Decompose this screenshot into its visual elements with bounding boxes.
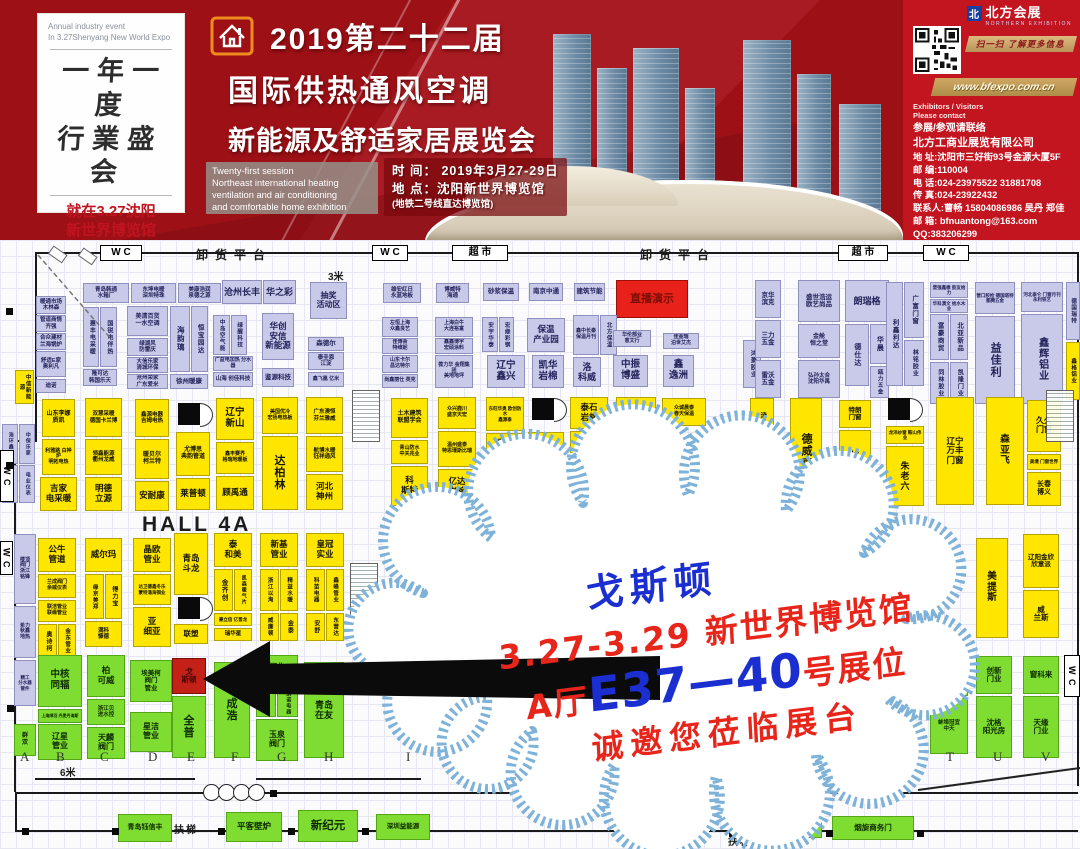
booth: 沧州荣家 广东爱米 (127, 374, 168, 389)
english-subtitle-line: ventilation and air conditioning (212, 189, 372, 201)
door-marker-icon (362, 828, 369, 835)
booth: 明德 立源 (85, 477, 122, 511)
website-link[interactable]: www.bfexpo.com.cn (931, 78, 1077, 96)
door-marker-icon (22, 828, 29, 835)
booth: 满科 慷德 (85, 621, 122, 647)
booth: 宏缘彩钢 (499, 317, 514, 352)
contact-line: 参展/参观请联络 (913, 122, 1075, 136)
booth: 新纪元 (298, 810, 358, 842)
radiator-icon (1046, 390, 1074, 442)
wall-corridor-outer (15, 792, 1078, 794)
english-subtitle-box: Twenty-first sessionNortheast internatio… (206, 162, 378, 214)
door-marker-icon (826, 830, 833, 837)
annual-event-text: Annual industry event In 3.27Shenyang Ne… (48, 22, 174, 44)
booth: 众诚晨泰 春天保温 (662, 398, 706, 426)
door-marker-icon (729, 830, 736, 837)
booth: 得力宝 (105, 574, 122, 619)
booth: 国锐电伴热 (100, 307, 117, 367)
map-label: 扶梯 (174, 821, 198, 836)
event-place: 地 点：沈阳新世界博览馆 (392, 180, 559, 198)
calligraphy-slogan: 一年一度 行業盛会 (43, 55, 178, 190)
booth: 青岛 在友 (304, 662, 344, 758)
booth: 绿湖风 防雷庆 (127, 338, 168, 356)
booth: 河北泰仑 门窗月刊 永利铁艺 (1021, 282, 1063, 312)
booth: 鑫 逸洲 (663, 355, 694, 387)
booth: 佳金瑞 泊世艾杰 (663, 333, 699, 349)
booth: 精益水暖 (280, 569, 298, 611)
booth: 尚鑫丽仕 英克 (382, 374, 418, 388)
contact-line: 联系人:曹畅 15804086986 吴丹 郑佳 (913, 202, 1075, 215)
booth: 中信新能源 (15, 370, 34, 404)
booth: 华伦部业 意文行 (613, 330, 651, 347)
booth: 徐州暖康 (170, 374, 208, 389)
column-letter: H (324, 749, 333, 765)
column-letter: C (100, 749, 109, 765)
booth: 兰成阀门 余威仪表 (38, 574, 76, 598)
booth-entrance-icon (888, 398, 910, 420)
booth: 东坤电暖 深圳特珠 (131, 283, 176, 303)
booth: 美清百货 一水空调 (127, 306, 168, 336)
wall-corridor-inner-a (35, 778, 195, 780)
booth: 金舱 恒之堂 (798, 324, 840, 358)
booth: 长春 博义 (1027, 472, 1061, 506)
booth: 迪诺 (36, 379, 66, 393)
column-letter: A (20, 749, 29, 765)
booth: 山东李娜 质凯 (42, 399, 75, 437)
booth: 科 斯特 (391, 466, 428, 506)
booth: 星洁 管业 (130, 712, 172, 752)
event-place-note: (地铁二号线直达博览馆) (392, 198, 559, 212)
column-letter: V (1041, 749, 1050, 765)
booth: 盛世浩运 欧艺尚品 (798, 280, 840, 322)
booth: W C (0, 450, 14, 502)
booth: W C (1064, 655, 1080, 697)
english-subtitle-line: Northeast international heating (212, 177, 372, 189)
booth: 鑫源电器 吉姆电热 (135, 399, 169, 437)
booth: 超 市 (838, 245, 888, 261)
booth: 尤博思 典韵管道 (176, 432, 210, 476)
column-letter: U (993, 749, 1002, 765)
booth: 利鑫利达 (886, 282, 903, 386)
booth: 中核 同辐 (38, 655, 82, 707)
booth: 精工 分水器 管件 (14, 660, 36, 706)
booth: 多 米乐 (528, 466, 564, 502)
radiator-icon (352, 390, 380, 442)
door-marker-icon (6, 462, 13, 469)
booth: 青岛韩通 水箱厂 (83, 283, 129, 303)
booth-entrance-icon (178, 597, 200, 619)
booth: 联塑 (174, 624, 208, 644)
booth: 鉴源科技 (262, 368, 294, 387)
english-subtitle-line: Twenty-first session (212, 165, 372, 177)
qr-code (913, 26, 961, 74)
logo-text: 北方会展 (986, 6, 1072, 19)
booth: 山海 创佳科技 (213, 372, 253, 387)
venue-announcement: 就在3.27沈阳 新世界博览馆 (48, 202, 174, 240)
booth: 森德尔 (308, 337, 344, 351)
booth: 堡强鑫橡 胶友给力 (930, 282, 968, 298)
booth: 辽宁 鑫兴 (487, 355, 525, 388)
column-letter: T (946, 749, 954, 765)
booth: 广东澳恒 芬兰雅威 (306, 397, 343, 434)
booth: 达卫德鑫冬乐 蒙特涌海铜业 (133, 574, 171, 605)
booth: 皇冠 实业 (306, 533, 344, 567)
door-marker-icon (6, 308, 13, 315)
booth: 浙江贝 进水控 (87, 699, 125, 725)
booth: 众兴鹿川 盛京天宏 (438, 397, 476, 429)
booth: 倾旋商务门 (770, 818, 822, 838)
booth-entrance-icon (532, 398, 554, 420)
qr-scan-ribbon: 扫一扫 了解更多信息 (965, 36, 1077, 52)
booth: 北亚新品 (950, 314, 968, 360)
booth: 朱 老 六 (886, 446, 924, 506)
highlighted-booth: 戈 斯顿 (172, 658, 206, 694)
booth-entrance-icon (178, 403, 200, 425)
title-line-3: 新能源及舒适家居展览会 (228, 119, 536, 158)
booth: 深圳益能源 (376, 814, 430, 840)
booth: 超 市 (452, 245, 508, 261)
booth: 辽阳金欣 欣意派 (1023, 534, 1059, 588)
booth: 河北 神州 (306, 474, 343, 510)
contact-line: 北方工商业展览有限公司 (913, 136, 1075, 151)
booth: 双慧采暖 德国卡兰博 (85, 398, 122, 437)
booth: 三力 五金 (755, 320, 781, 358)
booth: 保温 产业园 (527, 318, 565, 352)
contact-line: 邮 箱: bfnuantong@163.com (913, 215, 1075, 228)
booth: 葆力华 金翔集团 美地地坪 (435, 355, 473, 388)
contact-line: QQ:383206299 (913, 228, 1075, 240)
booth: 舒适E家 奥利凡 (36, 351, 66, 377)
booth: 平客壁炉 (226, 812, 282, 842)
booth: 鑫中长秦 保温月刊 (573, 315, 599, 355)
booth: 砂浆保温 (483, 283, 519, 301)
booth: 中振 博盛 (613, 355, 648, 387)
booth: 窗科来 (1023, 656, 1059, 694)
booth: 莱普顿 (176, 478, 210, 510)
contact-lines: Exhibitors / VisitorsPlease contact参展/参观… (913, 102, 1075, 240)
booth: 宁泰保温 领科实业 (570, 431, 608, 453)
door-marker-icon (288, 828, 295, 835)
booth: 沧州长丰 (222, 280, 262, 304)
map-label: 2M (670, 833, 684, 844)
wall-corridor-inner-b (256, 778, 421, 780)
door-marker-icon (112, 828, 119, 835)
booth: 威廉顿 (260, 613, 279, 641)
booth: 公牛 管道 (38, 538, 76, 572)
banner-title: 2019第二十二届 国际供热通风空调 新能源及舒适家居展览会 (228, 14, 536, 158)
booth: 雷沃 五金 (755, 360, 781, 398)
map-label: 6米 (60, 764, 76, 779)
booth: 纳诺电器 (277, 689, 298, 717)
booth: 朗瑞格 (845, 280, 889, 322)
door-marker-icon (7, 705, 14, 712)
time-place-block: 时 间： 2019年3月27-29日 地 点：沈阳新世界博览馆 (地铁二号线直达… (384, 158, 567, 216)
booth: 电业仪表 (19, 465, 35, 503)
logo-icon: 北 (967, 6, 982, 21)
title-line-2: 国际供热通风空调 (228, 66, 536, 110)
booth: 管道商情 齐强 (36, 315, 66, 332)
column-letter: G (277, 749, 286, 765)
contact-line: Exhibitors / Visitors (913, 102, 1075, 111)
booth: 达 柏 林 (262, 436, 298, 510)
booth: 普莱 斯德 (616, 397, 656, 473)
wall-left-outer (15, 792, 17, 832)
booth: 楼顶 阀门 浙江 铭锋 (14, 534, 36, 604)
booth: 上海白牛 大连裕富 (435, 317, 473, 337)
booth: 安宇华泰 (482, 317, 498, 352)
event-time: 时 间： 2019年3月27-29日 (392, 162, 559, 180)
banner: Annual industry event In 3.27Shenyang Ne… (0, 0, 1080, 240)
booth: 泰 和美 (214, 533, 252, 567)
booth: 亚 细亚 (133, 607, 171, 647)
map-label: 3米 (328, 268, 344, 283)
booth: 惠丰电采暖 (83, 307, 99, 367)
booth: 广益电加热 分水器 (213, 356, 253, 371)
booth: 新基 管业 (260, 533, 298, 567)
booth: 亿达 岩棉 (438, 469, 476, 505)
column-letter: F (231, 749, 238, 765)
booth: 合众建材 兰海锅炉 (36, 333, 66, 350)
booth: 利雅路 白桦炉 明拓电热 (42, 439, 75, 475)
booth: 温州盛泰 特思瑾斯比瑞 (438, 431, 476, 467)
booth: 津联型材 (750, 398, 774, 456)
english-subtitle-line: and comfortable home exhibition (212, 201, 372, 213)
booth: 德威克 (790, 398, 822, 504)
booth: 柏 可威 (87, 655, 125, 697)
booth: 金佰汇 (616, 475, 656, 503)
booth: 安舒 (306, 613, 325, 641)
booth: 绿醒科技 (231, 315, 247, 355)
booth: 科苗电器 (306, 569, 325, 611)
column-letter: I (406, 749, 410, 765)
booth: 瑞华星 (214, 628, 252, 641)
booth: 南京中通 (529, 283, 563, 301)
booth: 建筑节能 (574, 283, 605, 301)
booth: 鑫鑫博宇 宏硕涂料 (435, 338, 473, 354)
booth: W C (0, 541, 13, 575)
booth: 华科漠文 给水木业 (930, 299, 968, 313)
booth: 大信乐家 清城环保 (127, 357, 168, 373)
booth: 隆可达 韩国乐天 (83, 369, 117, 386)
booth: 鑫丰赛界 格瑞地暖板 (216, 442, 254, 474)
booth: 斯利 通江保温 (570, 455, 608, 473)
booth: 泰圣恩 江淀 (308, 352, 344, 370)
booth: 中保乐家 (19, 424, 35, 464)
booth: 东旺华奥 欧创防水 鑫源泰 (486, 397, 524, 431)
booth: 德仕达 (845, 324, 869, 386)
booth: 美康浩润 泉德之源 (178, 283, 221, 303)
contact-line: 电 话:024-23975522 31881708 (913, 177, 1075, 190)
booth: 华创 安信 新能源 (262, 313, 294, 360)
booth: 洛 科威 (573, 357, 601, 387)
booth: 埃美柯 阀门 管业 (130, 660, 172, 702)
booth: 吉家 电采暖 (40, 477, 77, 511)
booth: 豪立信 亿晋龙 (214, 613, 252, 626)
booth: 富豪商贸 (930, 314, 949, 360)
booth: 海韵璃 (170, 306, 190, 372)
booth: 金东管业 (58, 624, 76, 658)
booth: 广富门窗 (904, 282, 924, 338)
booth: 左恒上海 众鑫良艺 (382, 317, 418, 337)
booth: 格 来 迪 (839, 430, 871, 506)
booth: 联洁管业 联缘管业 (38, 600, 76, 622)
booth: 河北 亿能 (256, 655, 298, 687)
booth: 森 亚 飞 (986, 397, 1024, 505)
booth: 烟旋商务门 (832, 816, 914, 840)
booth: 弘孙太合 沈阳华禹 (798, 360, 840, 398)
column-letter: E (187, 749, 195, 765)
booth: 营口胶枪 德国塔特 都腾五金 (975, 282, 1015, 314)
booth: 希力 秋鑫 地热 (14, 606, 36, 658)
left-event-card: Annual industry event In 3.27Shenyang Ne… (38, 14, 184, 212)
wall-top (35, 252, 1078, 254)
booth: 青岛钰信丰 (118, 814, 172, 842)
booth: 恒宝园达 (191, 306, 208, 372)
door-marker-icon (218, 828, 225, 835)
booth: 龙洋纱窗 鞍山伟业 (886, 426, 924, 444)
booth: 金齐创 (214, 569, 233, 611)
booth: 永晨 伟业 (570, 475, 608, 505)
contact-line: 地 址:沈阳市三好街93号金源大厦5F (913, 151, 1075, 164)
booth: 星期八 宗森 (486, 485, 524, 511)
booth: 辽宁 新山 (216, 398, 254, 440)
booth: 凯森暖气片 (234, 569, 252, 611)
booth: 直播演示 (616, 280, 688, 318)
title-line-1: 2019第二十二届 (270, 14, 536, 58)
booth: 安耐康 (135, 481, 169, 511)
booth: 上海绿羽 丹麦丹海斯 (38, 709, 82, 723)
booth: 暖通市场 木林森 (36, 296, 66, 314)
booth: 金泰 (280, 613, 298, 641)
booth: 美境 门窗世界 (1027, 454, 1061, 470)
booth: 土木建筑 联盟学会 (391, 398, 428, 438)
booth: 奥诗柯 (38, 624, 57, 658)
revolving-door-icon (248, 784, 265, 801)
booth: 益佳利 (975, 316, 1015, 404)
booth: W C (372, 245, 408, 261)
booth: 德美斯 飞浴防水 (486, 433, 524, 459)
booth: 巨 (662, 455, 702, 483)
contact-line: 邮 编:110004 (913, 164, 1075, 177)
booth: 阀门 (256, 689, 276, 717)
booth: 威 兰斯 (1023, 590, 1059, 638)
column-letter: S (901, 749, 908, 765)
booth: 成 浩 (214, 662, 250, 758)
booth: 抽奖 活动区 (310, 282, 347, 319)
booth: 博威特 海通 (436, 283, 469, 303)
booth: 鑫飞凰 亿米 (308, 372, 344, 387)
booth: 暖贝尔 柯兰特 (135, 439, 169, 479)
contact-panel: 北 北方会展 NORTHERN EXHIBITION 扫一扫 了解更多信息 ww… (903, 0, 1080, 240)
booth: 林铭胶业 (904, 340, 924, 386)
column-letter: B (56, 749, 65, 765)
hall-label: HALL 4A (142, 513, 251, 537)
booth: 京华 滨克 (755, 280, 781, 318)
booth: 东营达 (326, 613, 344, 641)
booth: 鑫峰管业 (326, 569, 344, 611)
booth: 德国瑞特 (1066, 282, 1080, 340)
booth: 佳博会 特维妮 (382, 338, 418, 354)
poster: Annual industry event In 3.27Shenyang Ne… (0, 0, 1080, 849)
door-marker-icon (270, 790, 277, 797)
booth: 凯华 岩棉 (532, 355, 564, 388)
booth: 中岛空气能 (213, 315, 230, 355)
booth: 青岛 斗龙 (174, 533, 208, 595)
booth: 缘京美郑 (85, 574, 104, 619)
booth: 华之彩 (263, 280, 296, 304)
contact-line: Please contact (913, 111, 1075, 120)
booth: 青山防水 中关兆业 (391, 440, 428, 464)
column-letter: D (148, 749, 157, 765)
booth: W C (100, 245, 142, 261)
booth: 晶欧 管业 (133, 538, 171, 572)
booth: 雄安红日 永蓝地板 (383, 283, 421, 303)
booth: 辽宁 万丰 门窗 (936, 397, 974, 505)
booth: 永兴瑞治 长春 (486, 461, 524, 483)
booth: W C (923, 245, 969, 261)
booth: 泰石 岩棉 (570, 397, 608, 429)
booth: 顾禹通 (216, 476, 254, 510)
contact-line: 传 真:024-23922432 (913, 189, 1075, 202)
booth: 美国优冷 宏扬电热板 (262, 397, 298, 434)
booth: 航博水暖 钰祥通风 (306, 436, 343, 472)
booth: 领鑫能源 衢州龙威 (85, 439, 122, 475)
booth: 威尔玛 (85, 538, 122, 572)
booth: 山东卡尔 昌达特尔 (382, 355, 418, 373)
map-label: 卸货平台 (640, 246, 716, 263)
map-label: 卸货平台 (196, 246, 272, 263)
booth: 特朗 门窗 (839, 400, 871, 428)
door-marker-icon (917, 830, 924, 837)
booth: 浙江以淘 (260, 569, 279, 611)
booth: 盛铎 鑫源创 (528, 432, 564, 464)
